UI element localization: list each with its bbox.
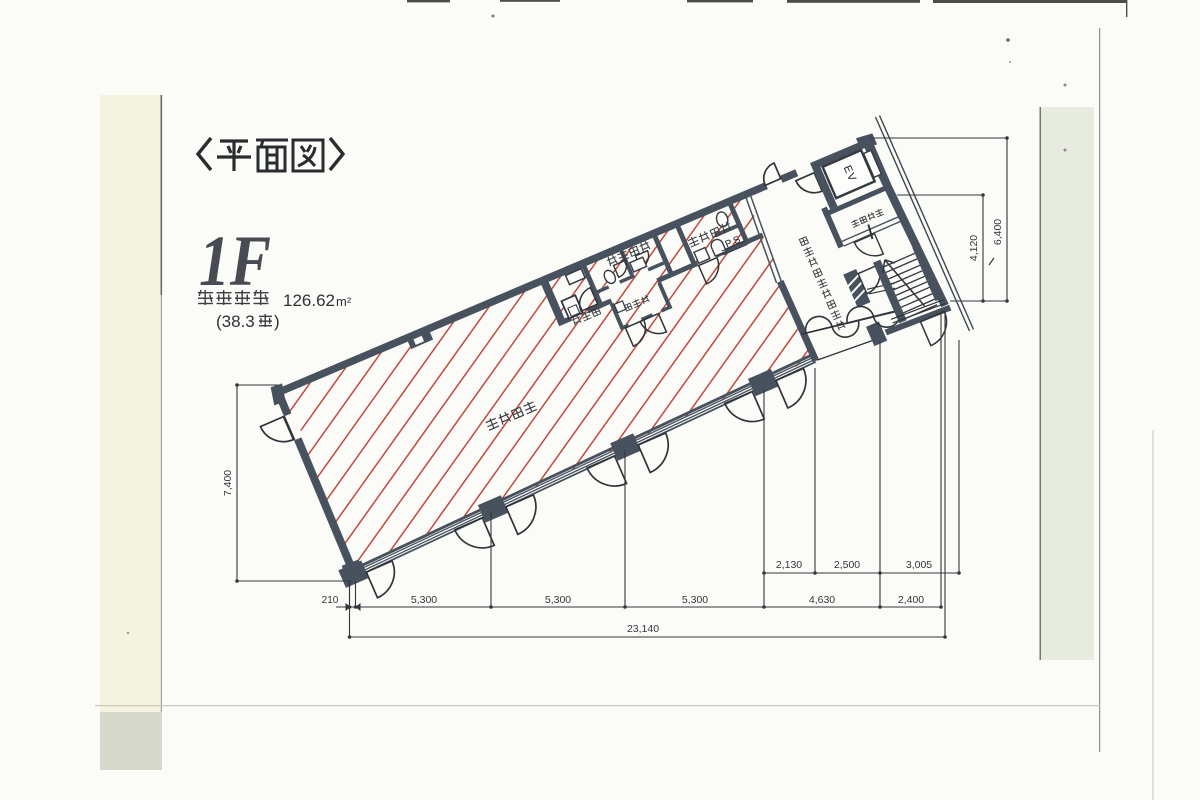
svg-text:5,300: 5,300: [545, 594, 571, 606]
svg-text:5,300: 5,300: [411, 594, 437, 606]
svg-text:5,300: 5,300: [682, 594, 708, 606]
svg-text:23,140: 23,140: [627, 623, 659, 635]
svg-text:126.62: 126.62: [283, 291, 335, 310]
svg-text:4,120: 4,120: [968, 235, 980, 261]
svg-text:7,400: 7,400: [222, 470, 234, 496]
svg-text:(38.3: (38.3: [216, 312, 255, 331]
svg-text:2,400: 2,400: [898, 594, 924, 606]
svg-text:2,500: 2,500: [834, 559, 860, 571]
svg-text:3,005: 3,005: [906, 559, 932, 571]
svg-text:4,630: 4,630: [809, 594, 835, 606]
svg-text:2,130: 2,130: [776, 559, 802, 571]
svg-text:210: 210: [322, 595, 339, 606]
svg-text:m²: m²: [336, 294, 352, 309]
svg-text:6,400: 6,400: [992, 219, 1004, 245]
svg-text:): ): [274, 312, 280, 331]
svg-text:1F: 1F: [199, 221, 271, 301]
